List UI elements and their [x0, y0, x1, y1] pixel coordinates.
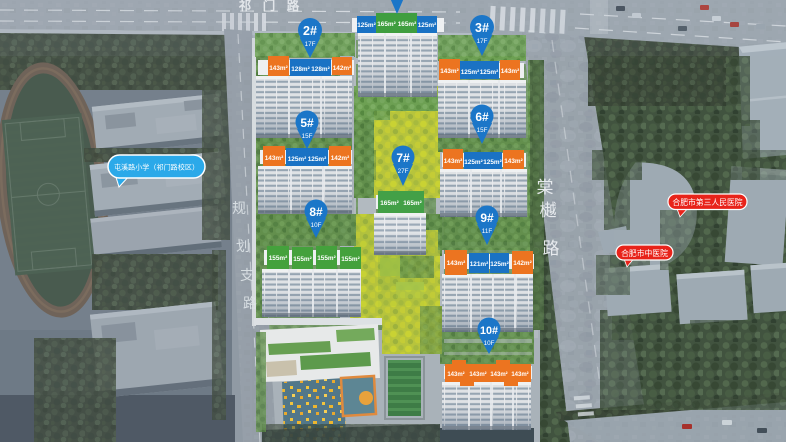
svg-text:合肥市第三人民医院: 合肥市第三人民医院: [672, 197, 742, 207]
svg-text:125m²: 125m²: [461, 69, 479, 76]
svg-text:17F: 17F: [477, 38, 488, 45]
svg-text:路: 路: [287, 0, 300, 13]
svg-text:125m²: 125m²: [288, 156, 306, 163]
svg-text:142m²: 142m²: [333, 65, 351, 72]
svg-text:128m²: 128m²: [311, 66, 329, 73]
svg-text:143m²: 143m²: [504, 158, 522, 165]
svg-text:27F: 27F: [398, 168, 409, 175]
svg-text:2#: 2#: [303, 24, 317, 38]
svg-text:棠: 棠: [537, 178, 554, 197]
svg-text:125m²: 125m²: [480, 69, 498, 76]
svg-text:125m²: 125m²: [464, 159, 482, 166]
svg-text:10F: 10F: [311, 222, 322, 229]
svg-text:樾: 樾: [540, 201, 557, 220]
svg-text:125m²: 125m²: [490, 261, 508, 268]
svg-text:155m²: 155m²: [341, 256, 359, 263]
svg-text:143m²: 143m²: [440, 68, 458, 75]
svg-text:143m²: 143m²: [501, 68, 519, 75]
svg-text:143m²: 143m²: [490, 371, 507, 378]
svg-text:121m²: 121m²: [470, 261, 488, 268]
svg-text:128m²: 128m²: [291, 66, 309, 73]
svg-text:17F: 17F: [305, 41, 316, 48]
svg-text:划: 划: [236, 238, 250, 254]
svg-text:143m²: 143m²: [265, 155, 283, 162]
svg-text:屯溪路小学（祁门路校区）: 屯溪路小学（祁门路校区）: [114, 162, 199, 171]
svg-text:门: 门: [263, 0, 276, 13]
svg-text:142m²: 142m²: [513, 260, 531, 267]
svg-text:165m²: 165m²: [380, 200, 398, 207]
svg-text:路: 路: [243, 295, 257, 311]
svg-text:合肥市中医院: 合肥市中医院: [621, 248, 668, 258]
svg-text:165m²: 165m²: [377, 21, 395, 28]
svg-text:155m²: 155m²: [293, 256, 311, 263]
svg-text:143m²: 143m²: [269, 65, 287, 72]
svg-text:143m²: 143m²: [444, 158, 462, 165]
svg-text:8#: 8#: [309, 205, 323, 219]
svg-text:143m²: 143m²: [469, 371, 486, 378]
svg-text:5#: 5#: [300, 116, 314, 130]
svg-text:10#: 10#: [480, 325, 498, 337]
svg-text:15F: 15F: [302, 133, 313, 140]
svg-text:125m²: 125m²: [308, 156, 326, 163]
svg-text:6#: 6#: [475, 110, 489, 124]
svg-text:125m²: 125m²: [483, 159, 501, 166]
svg-text:165m²: 165m²: [398, 21, 416, 28]
svg-text:125m²: 125m²: [357, 22, 375, 29]
svg-text:165m²: 165m²: [403, 200, 421, 207]
svg-text:143m²: 143m²: [511, 371, 528, 378]
svg-text:125m²: 125m²: [418, 22, 436, 29]
svg-text:7#: 7#: [396, 151, 410, 165]
svg-text:155m²: 155m²: [269, 255, 287, 262]
svg-text:11F: 11F: [482, 228, 493, 235]
svg-text:9#: 9#: [480, 211, 494, 225]
svg-text:15F: 15F: [477, 127, 488, 134]
svg-text:143m²: 143m²: [447, 260, 465, 267]
svg-text:路: 路: [543, 239, 560, 258]
svg-text:10F: 10F: [484, 340, 495, 347]
svg-text:规: 规: [232, 200, 246, 216]
svg-text:155m²: 155m²: [317, 255, 335, 262]
svg-text:3#: 3#: [475, 21, 489, 35]
svg-text:142m²: 142m²: [331, 155, 349, 162]
svg-text:祁: 祁: [239, 0, 252, 13]
svg-text:支: 支: [240, 267, 254, 283]
svg-text:143m²: 143m²: [447, 371, 464, 378]
